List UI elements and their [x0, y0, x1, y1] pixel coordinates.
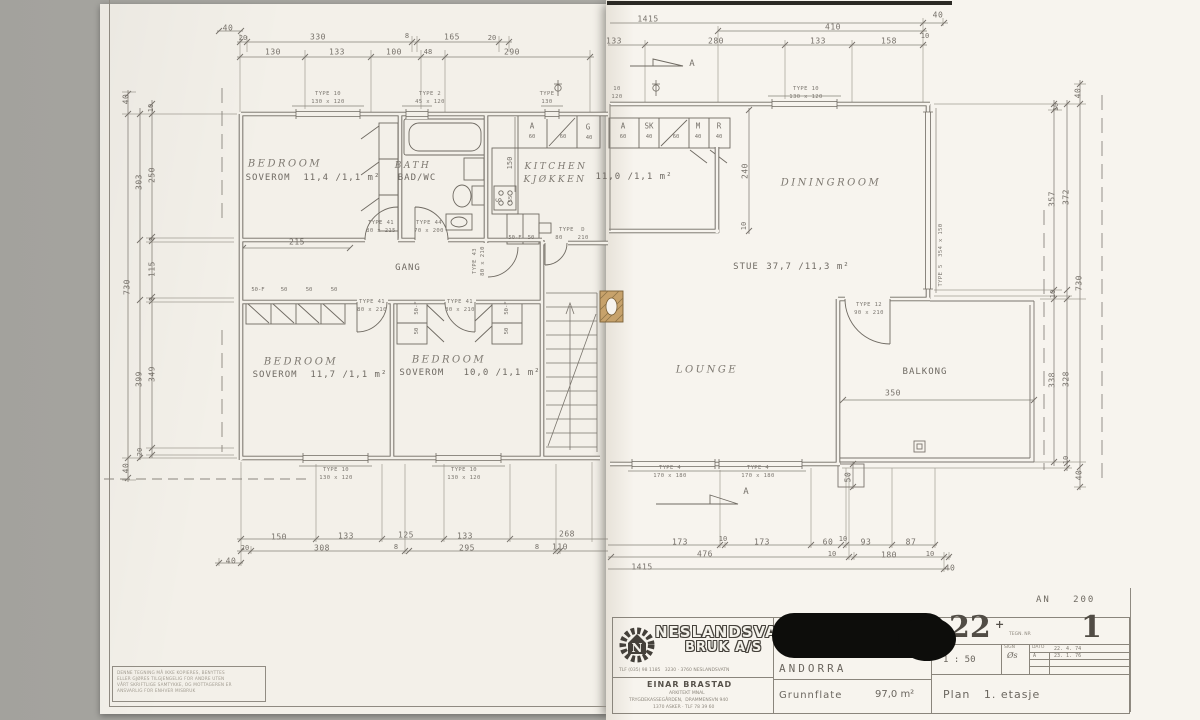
- drawing-number-label: TEGN. NR: [1009, 632, 1031, 637]
- sign-label: SIGN: [1004, 645, 1015, 650]
- scanned-page-left: [100, 4, 608, 714]
- date-value: 22. 4. 74: [1054, 646, 1081, 652]
- drawing-frame-line: [1130, 588, 1131, 712]
- scanned-page-right: [606, 0, 1200, 720]
- architect-name: EINAR BRASTAD: [647, 680, 732, 689]
- area-label: Grunnflate: [779, 690, 842, 701]
- svg-text:N: N: [632, 641, 643, 655]
- document-ref: AN 200: [1036, 595, 1095, 605]
- project-name: ANDORRA: [779, 662, 846, 675]
- company-name: BRUK A/S: [685, 640, 762, 655]
- company-contact: TLF (035) 98 1185 3230 · 3760 NESLANDSVA…: [619, 668, 729, 673]
- sign-value: Øs: [1007, 651, 1018, 660]
- plan-title: Plan 1. etasje: [943, 688, 1040, 701]
- scale-value: 1 : 50: [943, 655, 976, 665]
- house-type-plus: +: [995, 618, 1004, 631]
- scanned-floorplan-screenshot: 4020330816520130133100482901415410401332…: [0, 0, 1200, 720]
- architect-address: 1370 ASKER · TLF 78 39 60: [653, 705, 714, 710]
- redaction-blob: [898, 617, 956, 661]
- scan-edge-artifact: [607, 1, 952, 5]
- date-label: DATO: [1032, 645, 1044, 650]
- architect-address: TRYGDEKASSEGÅRDEN, DRAMMENSVN 940: [629, 698, 728, 703]
- drawing-frame-line: [109, 0, 110, 706]
- copyright-note-box: DENNE TEGNING MÅ IKKE KOPIERES, BENYTTES…: [112, 666, 266, 702]
- company-logo-gear-icon: N: [617, 624, 657, 666]
- copyright-note-line: ANSVARLIG FOR ENHVER MISBRUK: [117, 688, 261, 694]
- drawing-number: 1: [1081, 610, 1102, 645]
- architect-title: ARKITEKT MNAL: [669, 691, 705, 696]
- revision-letter: A: [1033, 653, 1036, 659]
- date-value: 23. 1. 76: [1054, 653, 1081, 659]
- area-value: 97,0 m²: [875, 689, 914, 700]
- drawing-frame-line: [109, 706, 606, 707]
